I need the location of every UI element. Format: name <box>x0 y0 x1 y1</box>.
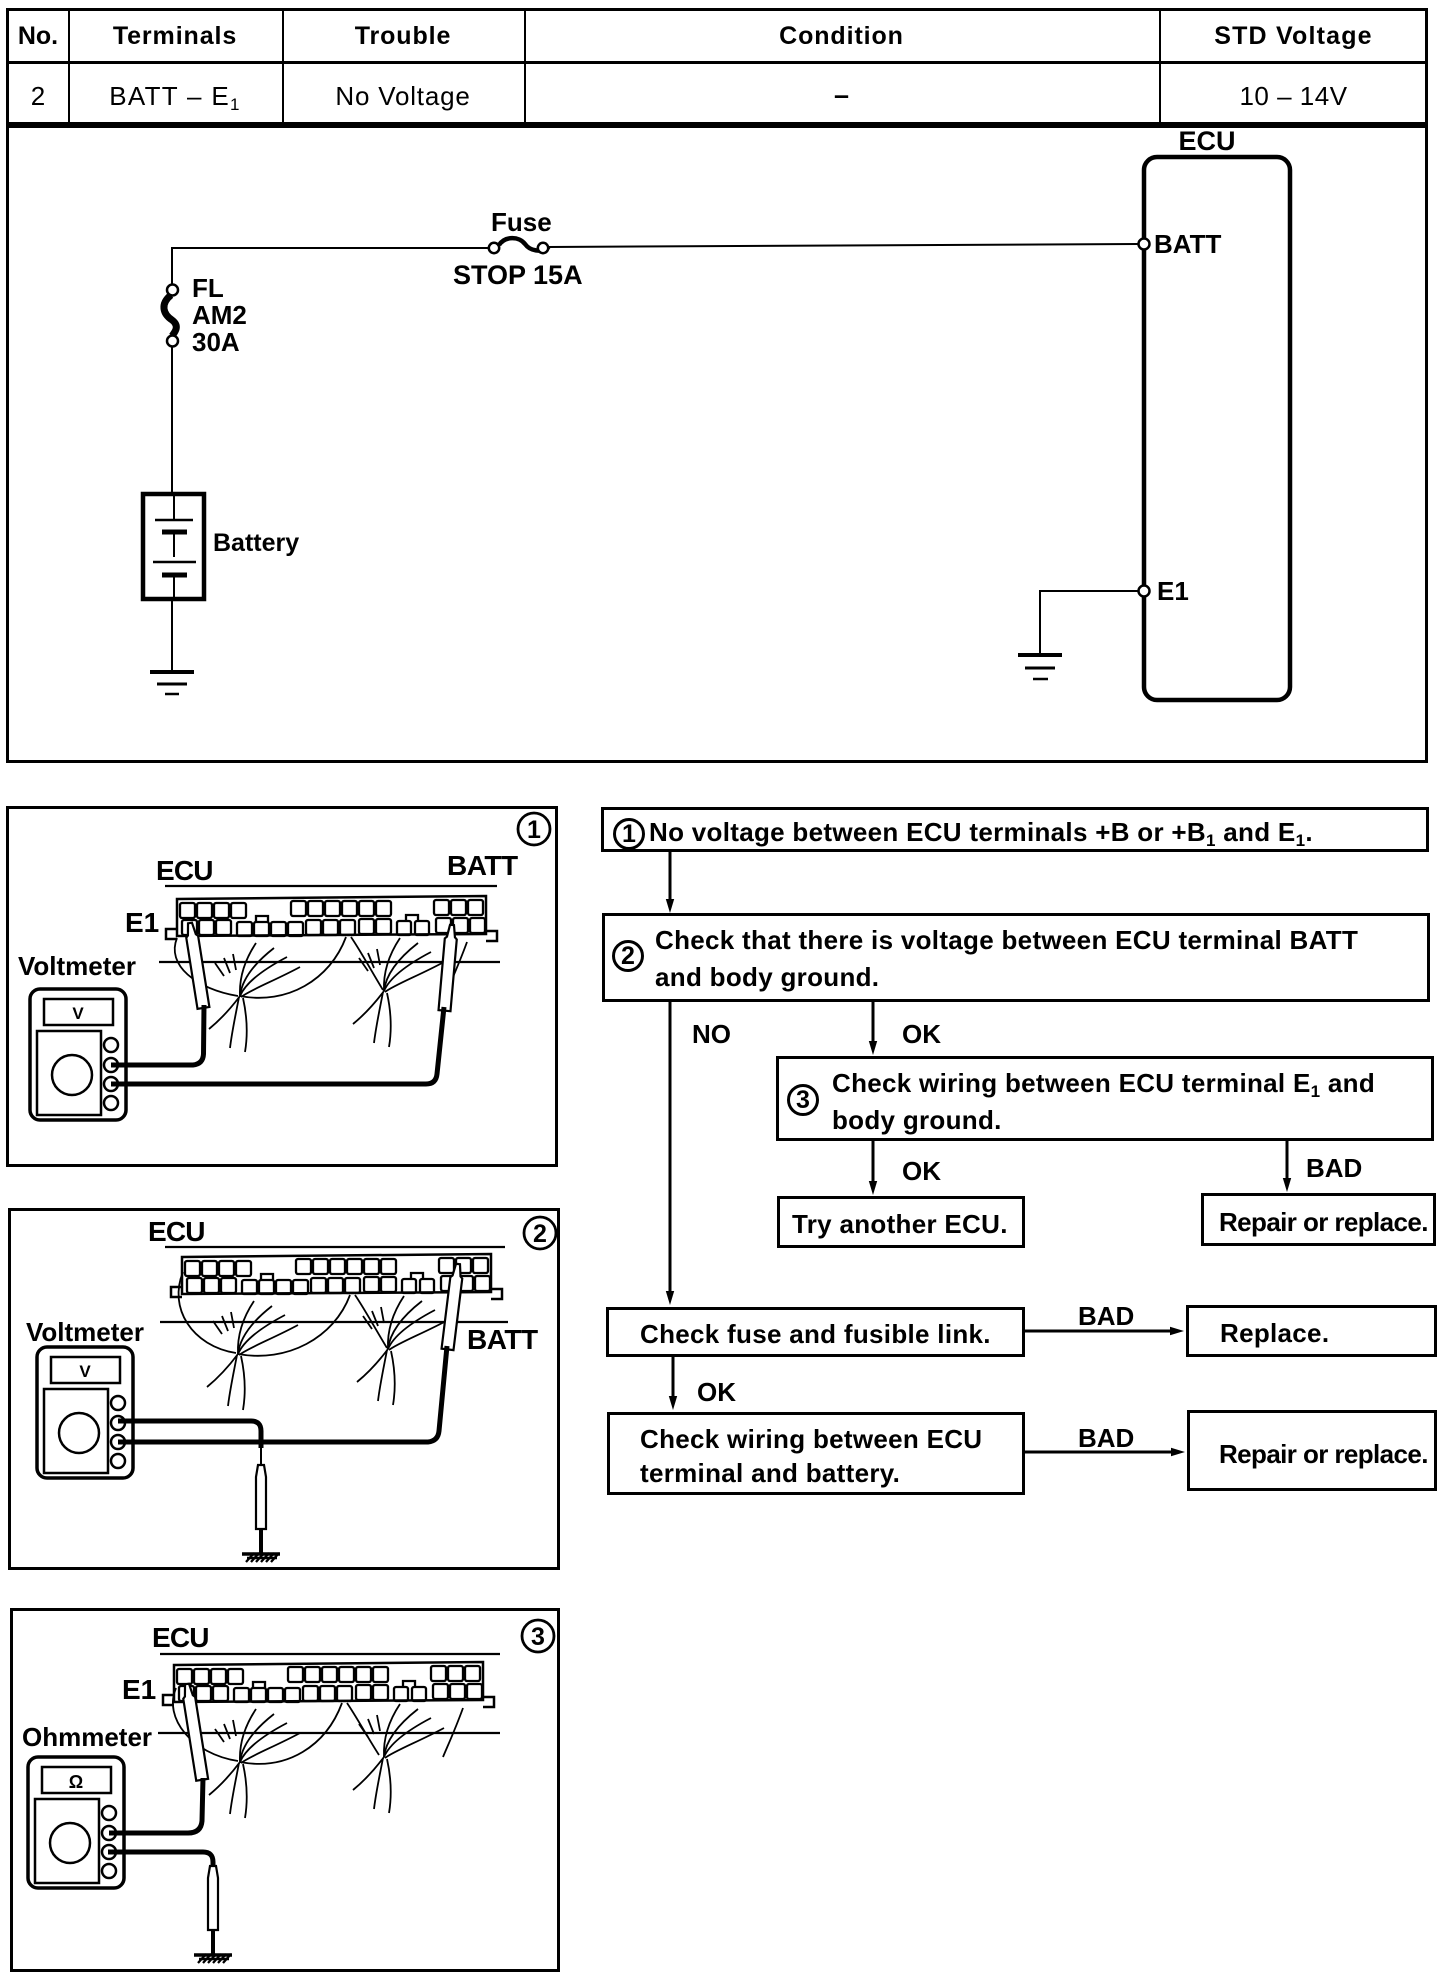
svg-text:ECU: ECU <box>152 1622 209 1653</box>
svg-text:V: V <box>72 1004 84 1023</box>
svg-text:Battery: Battery <box>213 529 299 557</box>
svg-text:BATT: BATT <box>447 850 518 881</box>
svg-text:AM2: AM2 <box>192 300 247 330</box>
svg-text:Ohmmeter: Ohmmeter <box>22 1722 152 1752</box>
svg-text:STOP 15A: STOP 15A <box>453 260 583 290</box>
svg-text:Ω: Ω <box>69 1772 83 1792</box>
svg-text:BATT: BATT <box>1154 229 1222 259</box>
svg-text:ECU: ECU <box>148 1216 205 1247</box>
svg-text:Voltmeter: Voltmeter <box>26 1317 144 1347</box>
svg-text:E1: E1 <box>122 1674 156 1705</box>
svg-text:ECU: ECU <box>1178 126 1235 156</box>
svg-text:V: V <box>79 1362 91 1381</box>
svg-text:30A: 30A <box>192 327 240 357</box>
svg-text:1: 1 <box>527 816 541 844</box>
svg-text:2: 2 <box>533 1220 547 1248</box>
svg-text:FL: FL <box>192 273 224 303</box>
svg-text:Fuse: Fuse <box>491 207 552 237</box>
svg-text:BATT: BATT <box>467 1324 538 1355</box>
svg-text:ECU: ECU <box>156 855 213 886</box>
svg-text:Voltmeter: Voltmeter <box>18 951 136 981</box>
svg-text:E1: E1 <box>125 907 159 938</box>
svg-text:E1: E1 <box>1157 576 1189 606</box>
svg-text:3: 3 <box>531 1623 545 1651</box>
